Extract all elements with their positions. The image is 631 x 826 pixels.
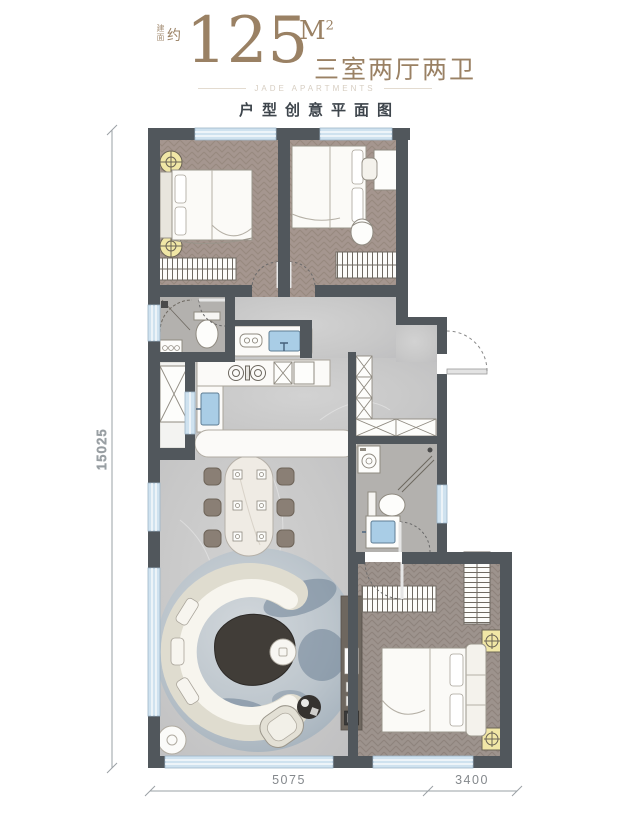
- dining-chair: [204, 499, 221, 516]
- window: [185, 392, 195, 434]
- window: [148, 483, 160, 531]
- bed-icon: [292, 146, 366, 228]
- window: [195, 128, 276, 140]
- window: [165, 756, 333, 768]
- dimension-left: 15025: [95, 125, 117, 773]
- washer-icon: [358, 446, 380, 473]
- window: [320, 128, 392, 140]
- desk-chair: [362, 158, 377, 180]
- toilet-icon: [194, 312, 220, 348]
- floorplan-page: 建面 约 125 M2 三室两厅两卫 JADE APARTMENTS 户型创意平…: [0, 0, 631, 826]
- entry-door: [447, 331, 487, 374]
- desk-icon: [374, 150, 398, 190]
- dining-area: [204, 456, 294, 556]
- dining-chair: [277, 499, 294, 516]
- dining-chair: [277, 530, 294, 547]
- dimension-bottom: 5075 3400: [145, 773, 522, 796]
- window: [148, 568, 160, 716]
- vanity-sink-icon: [362, 516, 400, 548]
- window: [148, 305, 160, 341]
- dim-width-left-label: 5075: [272, 773, 306, 787]
- dim-width-right-label: 3400: [455, 773, 489, 787]
- floorplan-drawing: 15025 5075 3400: [0, 0, 631, 826]
- side-table-white: [270, 639, 296, 665]
- window: [437, 485, 447, 523]
- window: [373, 756, 473, 768]
- bed-icon: [382, 644, 486, 736]
- island-counter: [195, 430, 357, 457]
- dining-chair: [204, 468, 221, 485]
- bed-icon: [160, 170, 252, 244]
- dining-chair: [204, 530, 221, 547]
- prep-sink: [201, 393, 219, 425]
- side-table-dark: [297, 695, 321, 719]
- chair-icon: [351, 219, 373, 245]
- utility-room: [160, 366, 188, 422]
- floor-lamp: [158, 726, 186, 754]
- dining-chair: [277, 468, 294, 485]
- dim-height-label: 15025: [95, 428, 109, 470]
- toilet-icon: [368, 492, 405, 518]
